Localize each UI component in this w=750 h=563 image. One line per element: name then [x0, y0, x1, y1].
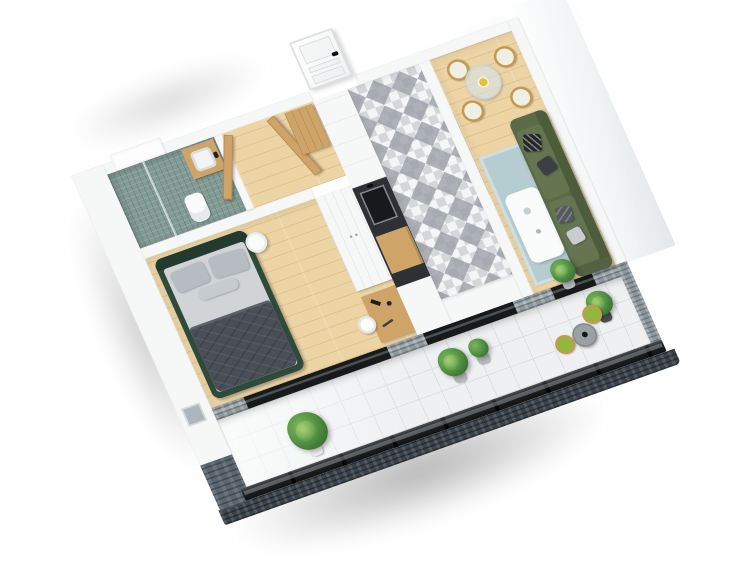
shower-glass-partition [142, 161, 177, 236]
door-handle [331, 51, 339, 57]
balcony-palm-plant-large [282, 407, 334, 455]
rattan-dining-chair [490, 43, 519, 70]
table-decor [522, 206, 532, 215]
sofa-pillow [554, 205, 574, 223]
toilet [183, 191, 213, 224]
sink [189, 146, 217, 172]
entry-door [289, 28, 353, 90]
desk-accessory [370, 299, 381, 306]
table-decor [535, 228, 542, 234]
wardrobe-knob [349, 235, 352, 238]
rattan-dining-chair [507, 84, 536, 111]
desk-accessory [386, 300, 393, 306]
west-window [181, 403, 207, 427]
rattan-dining-chair [458, 97, 487, 124]
sofa-pillow [522, 134, 542, 152]
apartment-render-canvas [0, 0, 750, 563]
wardrobe-knob [355, 233, 358, 236]
fruit-bowl [478, 77, 489, 87]
apartment-plan [92, 17, 673, 516]
wooden-door-leaf [223, 135, 233, 200]
balcony-palm-plant-medium [434, 344, 473, 380]
desk-accessory [382, 319, 393, 328]
balcony-bush-plant [466, 336, 492, 360]
bottle [581, 331, 589, 338]
